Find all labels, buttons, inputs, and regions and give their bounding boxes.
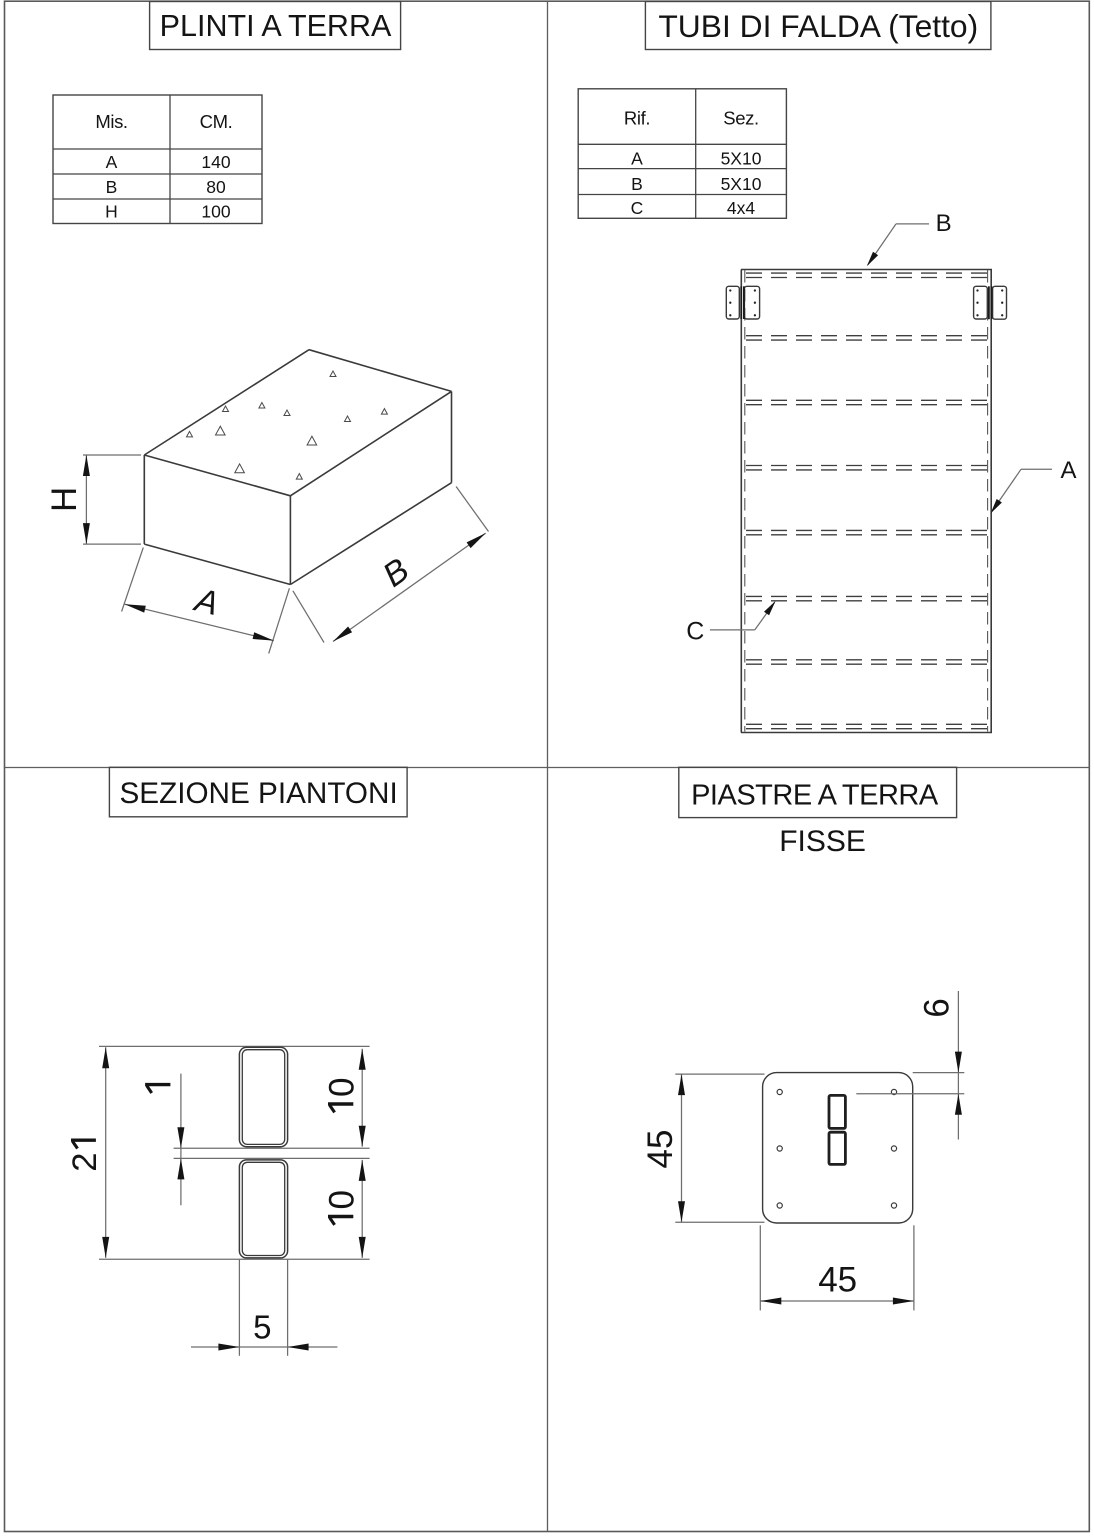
svg-text:Mis.: Mis. bbox=[95, 111, 127, 132]
svg-text:0: 0 bbox=[322, 1078, 361, 1097]
svg-text:PIASTRE A TERRA: PIASTRE A TERRA bbox=[691, 779, 939, 811]
svg-text:80: 80 bbox=[206, 177, 226, 197]
svg-text:2: 2 bbox=[66, 1153, 104, 1172]
svg-text:A: A bbox=[190, 581, 222, 623]
svg-text:5: 5 bbox=[253, 1308, 271, 1345]
svg-text:45: 45 bbox=[818, 1261, 857, 1300]
svg-text:C: C bbox=[686, 618, 704, 646]
svg-text:45: 45 bbox=[641, 1130, 680, 1169]
svg-text:H: H bbox=[105, 202, 118, 222]
svg-text:0: 0 bbox=[322, 1190, 361, 1209]
svg-text:140: 140 bbox=[201, 152, 230, 172]
svg-text:6: 6 bbox=[917, 998, 956, 1017]
svg-text:Sez.: Sez. bbox=[723, 107, 758, 128]
svg-text:100: 100 bbox=[201, 202, 230, 222]
svg-text:5X10: 5X10 bbox=[721, 148, 762, 168]
svg-text:B: B bbox=[631, 174, 643, 194]
svg-text:A: A bbox=[1060, 457, 1076, 484]
svg-text:B: B bbox=[106, 177, 118, 197]
svg-text:CM.: CM. bbox=[200, 111, 233, 132]
svg-text:FISSE: FISSE bbox=[779, 825, 866, 858]
svg-text:H: H bbox=[45, 487, 84, 512]
svg-text:Rif.: Rif. bbox=[624, 107, 650, 128]
svg-text:TUBI DI FALDA (Tetto): TUBI DI FALDA (Tetto) bbox=[658, 8, 978, 44]
svg-text:A: A bbox=[106, 152, 118, 172]
svg-text:B: B bbox=[936, 210, 952, 237]
svg-text:B: B bbox=[376, 552, 416, 595]
svg-text:4x4: 4x4 bbox=[727, 198, 755, 218]
svg-text:5X10: 5X10 bbox=[721, 174, 762, 194]
svg-text:A: A bbox=[631, 148, 643, 168]
svg-text:SEZIONE PIANTONI: SEZIONE PIANTONI bbox=[119, 777, 397, 810]
svg-text:PLINTI A TERRA: PLINTI A TERRA bbox=[160, 9, 392, 43]
svg-text:C: C bbox=[631, 198, 644, 218]
